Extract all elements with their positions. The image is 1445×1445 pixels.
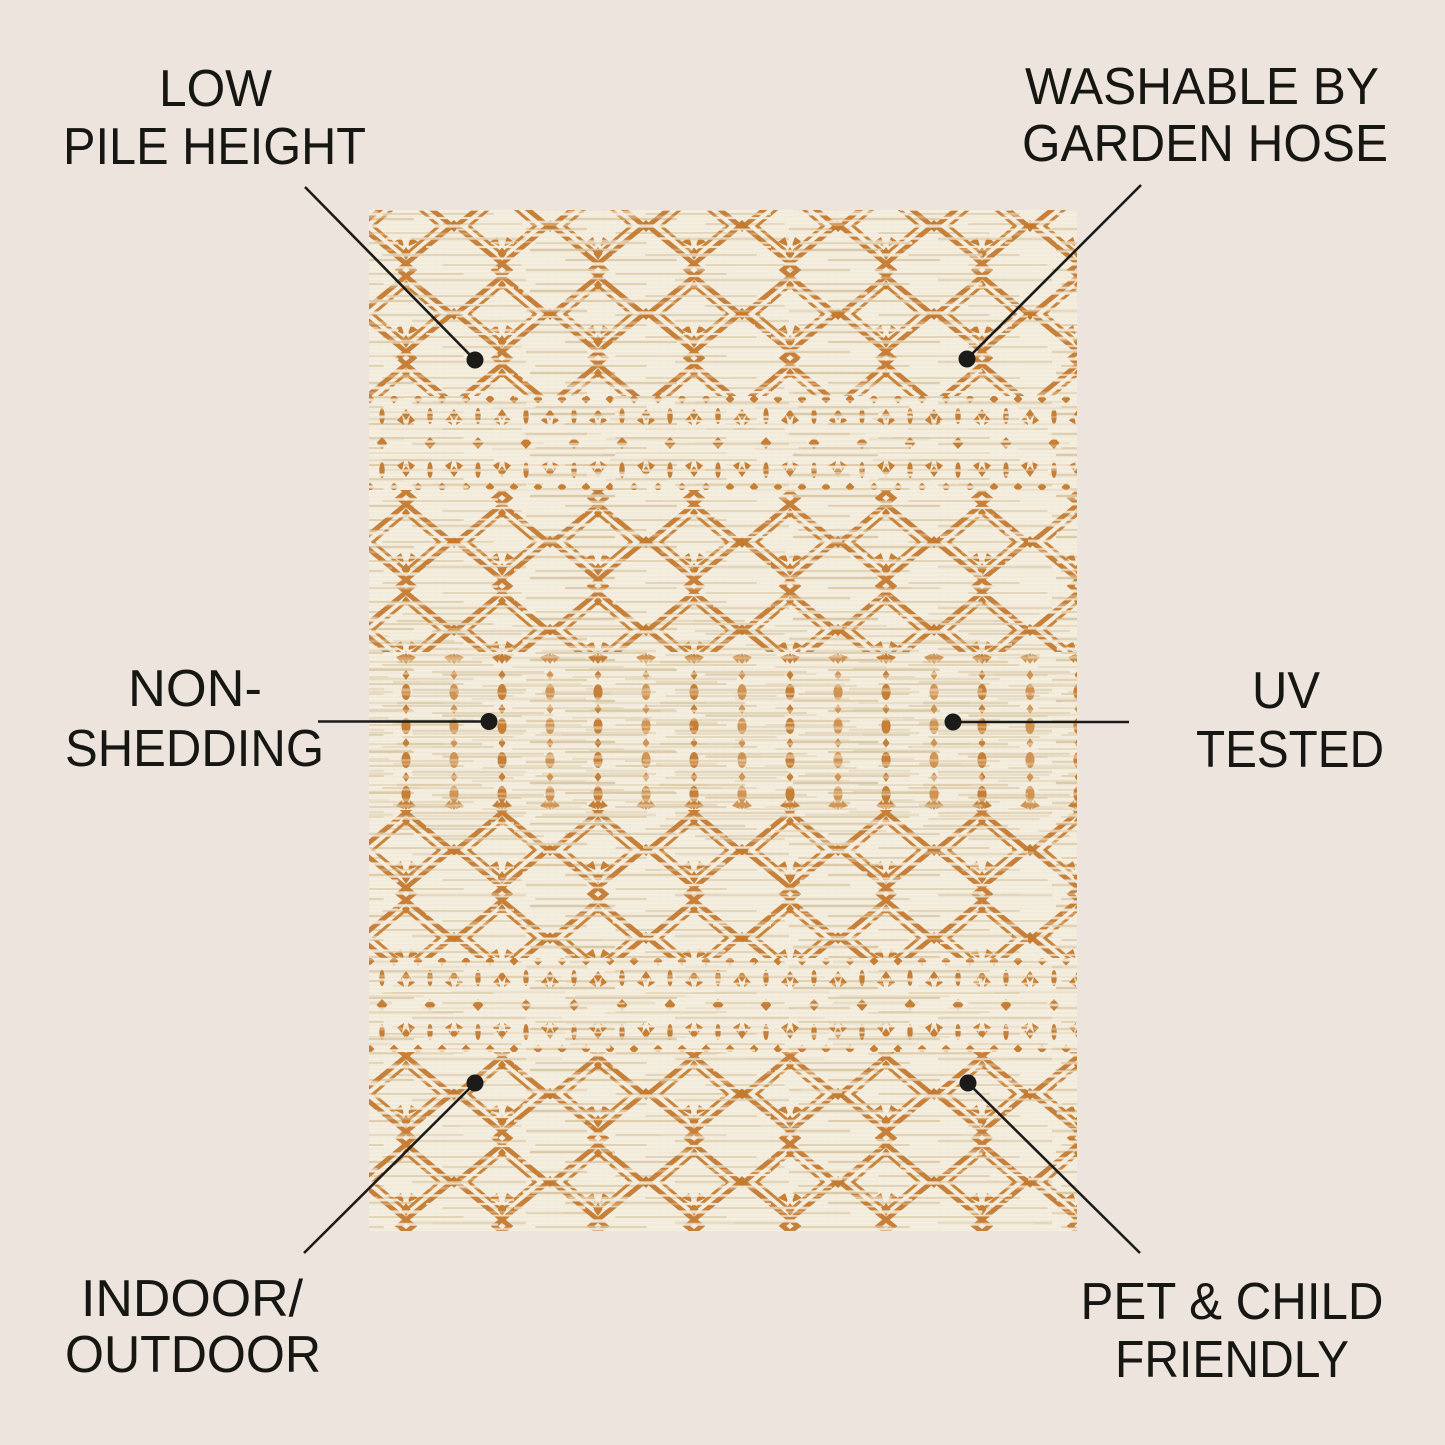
svg-text:FRIENDLY: FRIENDLY xyxy=(1115,1331,1349,1389)
svg-text:PET & CHILD: PET & CHILD xyxy=(1081,1273,1384,1331)
svg-text:PILE HEIGHT: PILE HEIGHT xyxy=(63,118,366,176)
svg-text:INDOOR/: INDOOR/ xyxy=(81,1270,304,1328)
svg-text:WASHABLE BY: WASHABLE BY xyxy=(1025,58,1379,116)
svg-text:LOW: LOW xyxy=(159,60,272,118)
svg-text:OUTDOOR: OUTDOOR xyxy=(65,1326,321,1384)
svg-text:TESTED: TESTED xyxy=(1196,721,1384,779)
svg-text:UV: UV xyxy=(1252,662,1320,720)
svg-text:GARDEN HOSE: GARDEN HOSE xyxy=(1022,115,1388,173)
svg-text:SHEDDING: SHEDDING xyxy=(65,720,324,778)
svg-text:NON-: NON- xyxy=(128,660,262,718)
